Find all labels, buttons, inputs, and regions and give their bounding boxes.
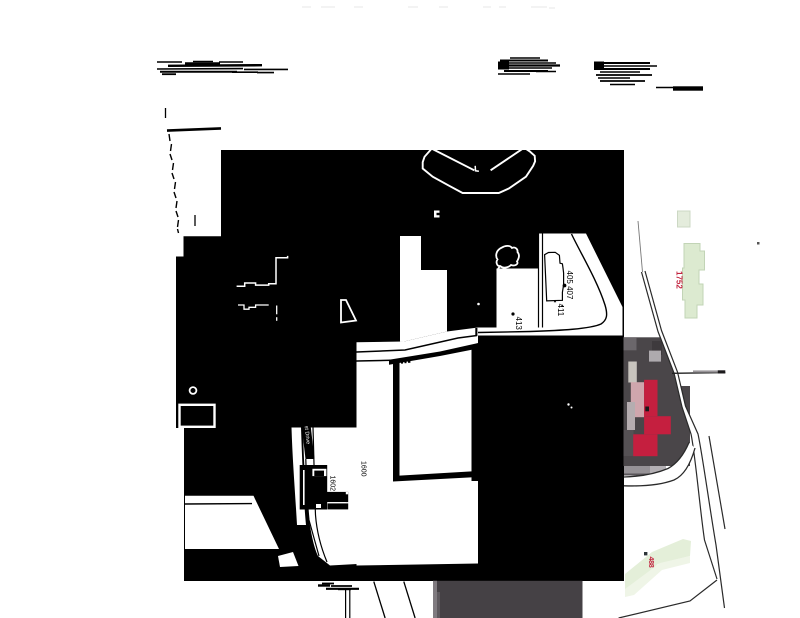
svg-text:413: 413 (514, 317, 523, 331)
svg-text:405 407: 405 407 (565, 271, 574, 300)
svg-text:411: 411 (556, 304, 565, 317)
svg-text:488: 488 (647, 557, 656, 568)
svg-text:1752: 1752 (675, 271, 684, 289)
svg-text:1602: 1602 (329, 476, 336, 492)
svg-text:1600: 1600 (360, 461, 367, 477)
